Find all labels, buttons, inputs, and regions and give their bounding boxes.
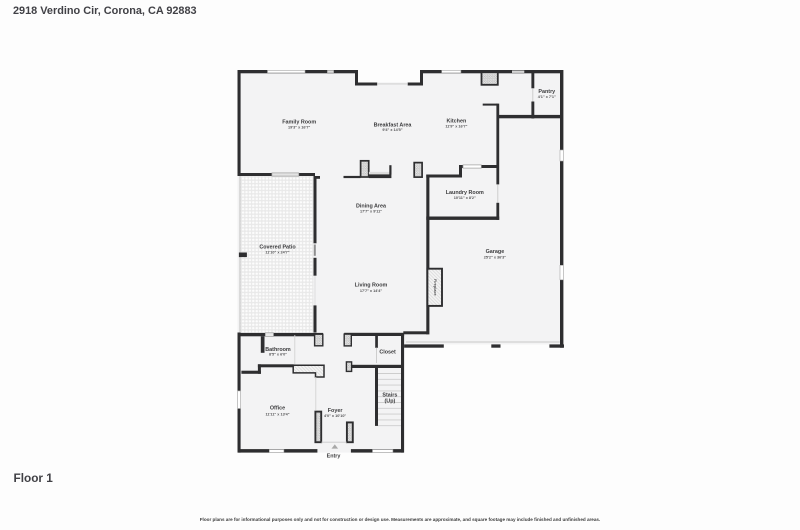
svg-text:17'7" x 14'4": 17'7" x 14'4" bbox=[360, 289, 382, 293]
svg-text:Laundry Room: Laundry Room bbox=[446, 190, 484, 196]
svg-text:Garage: Garage bbox=[486, 249, 505, 255]
svg-text:9'4" x 14'5": 9'4" x 14'5" bbox=[382, 128, 402, 132]
svg-text:8'5" x 6'0": 8'5" x 6'0" bbox=[269, 352, 287, 356]
svg-text:11'9" x 16'7": 11'9" x 16'7" bbox=[445, 125, 467, 129]
svg-text:Living Room: Living Room bbox=[355, 283, 388, 289]
svg-text:Fireplace: Fireplace bbox=[433, 279, 437, 296]
svg-text:Covered Patio: Covered Patio bbox=[259, 245, 296, 251]
svg-text:Closet: Closet bbox=[379, 350, 396, 356]
svg-text:11'11" x 13'4": 11'11" x 13'4" bbox=[266, 413, 290, 417]
svg-text:Kitchen: Kitchen bbox=[447, 119, 467, 125]
svg-text:25'2" x 36'3": 25'2" x 36'3" bbox=[484, 255, 506, 259]
svg-text:19'3" x 16'7": 19'3" x 16'7" bbox=[288, 125, 310, 129]
svg-text:Office: Office bbox=[270, 406, 285, 412]
svg-text:Entry: Entry bbox=[327, 453, 341, 459]
svg-text:11'10" x 24'7": 11'10" x 24'7" bbox=[265, 251, 289, 255]
svg-text:4'0" x 10'10": 4'0" x 10'10" bbox=[324, 414, 346, 418]
svg-text:17'7" x 9'11": 17'7" x 9'11" bbox=[360, 210, 382, 214]
svg-text:4'1" x 7'1": 4'1" x 7'1" bbox=[538, 95, 556, 99]
svg-text:10'11" x 8'2": 10'11" x 8'2" bbox=[454, 196, 476, 200]
svg-text:(Up): (Up) bbox=[385, 398, 396, 404]
